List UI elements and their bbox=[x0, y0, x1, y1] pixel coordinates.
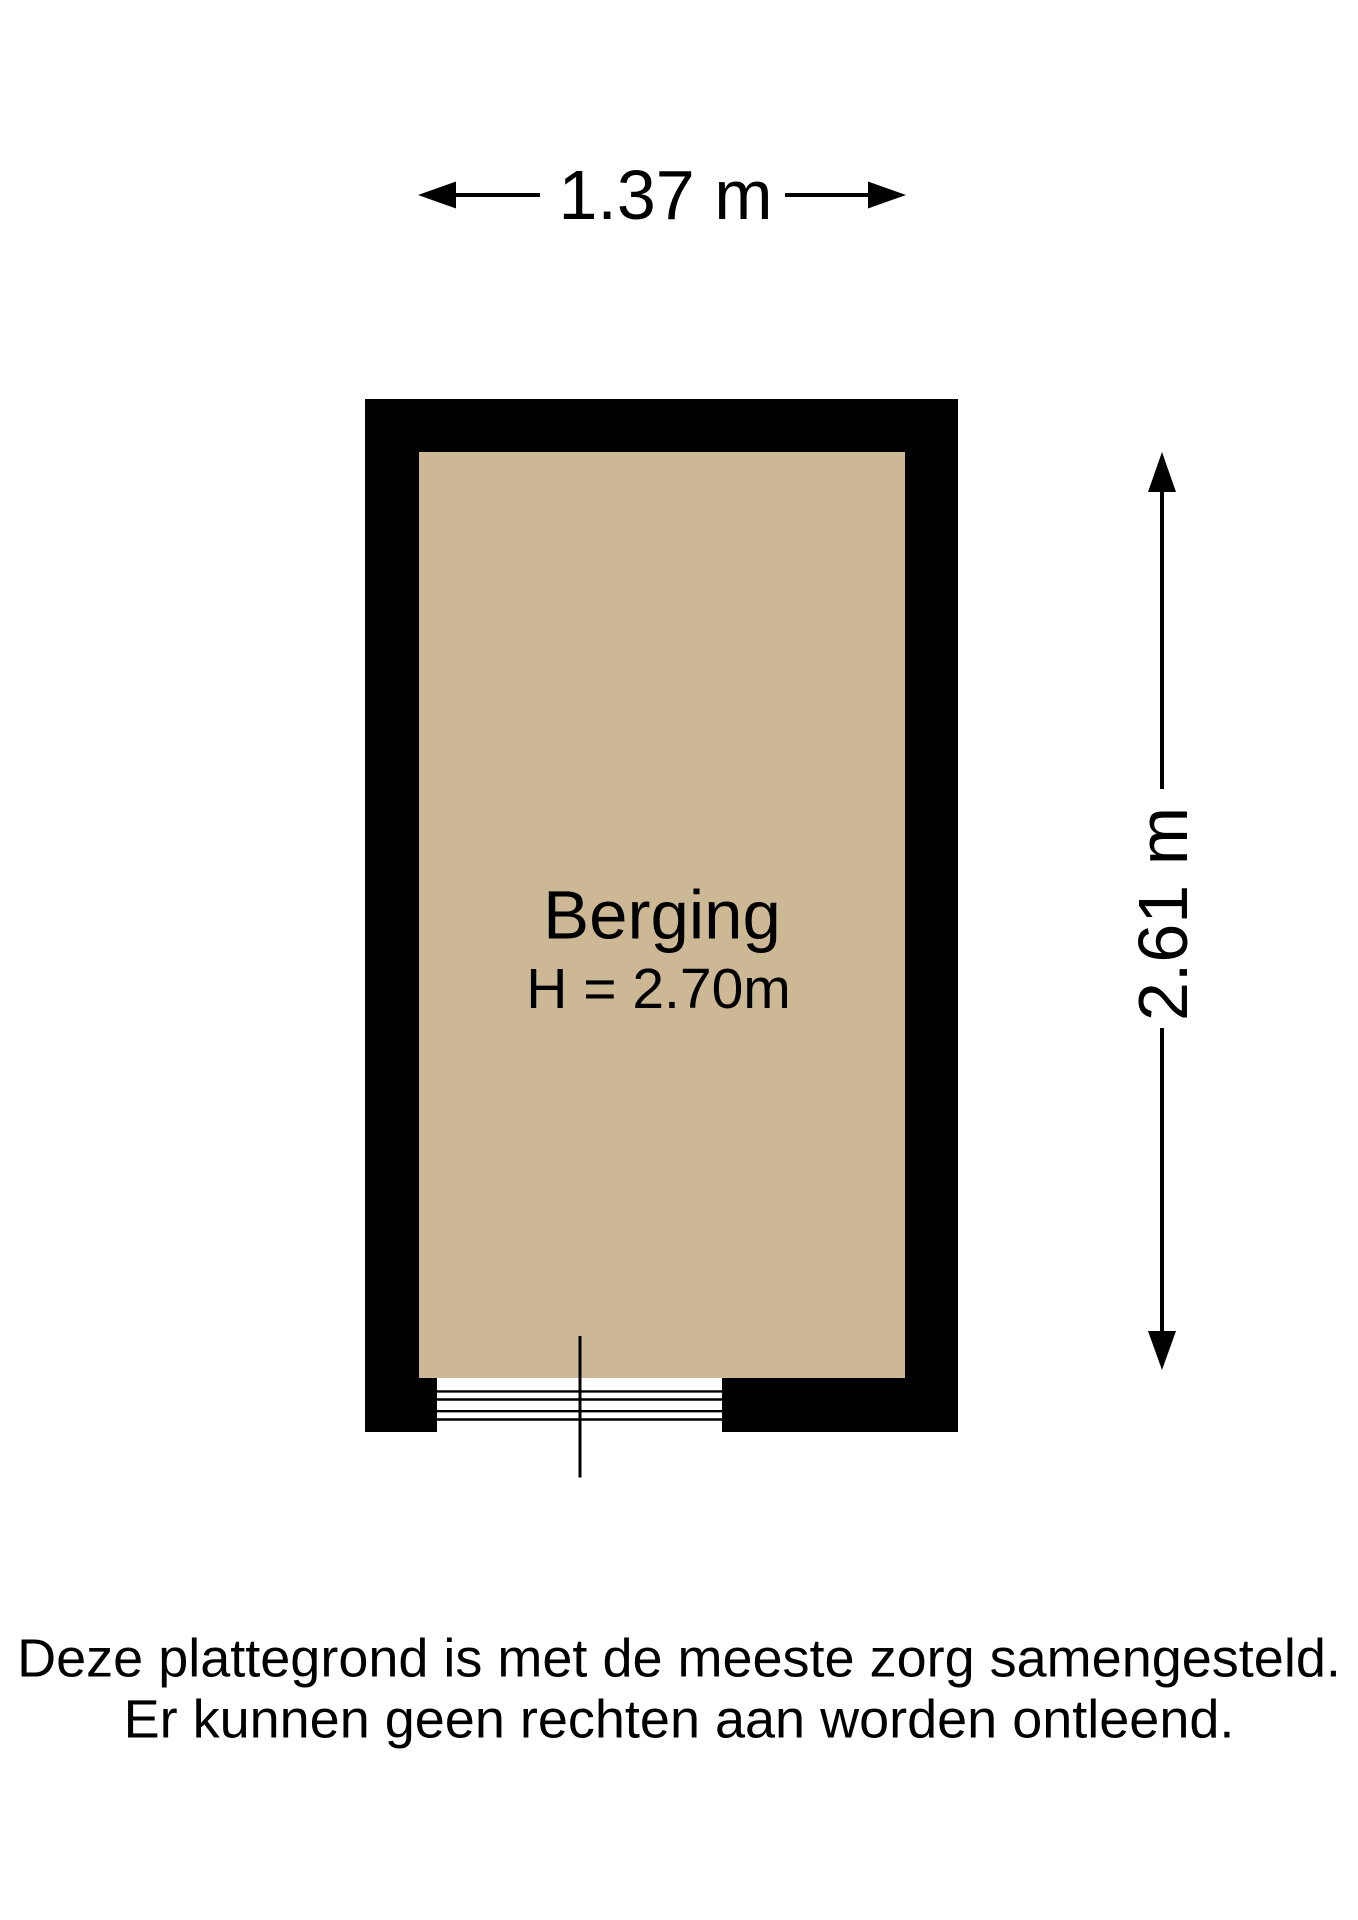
svg-text:Deze plattegrond is met de mee: Deze plattegrond is met de meeste zorg s… bbox=[17, 1628, 1341, 1688]
svg-text:1.37 m: 1.37 m bbox=[559, 156, 773, 234]
svg-text:Berging: Berging bbox=[543, 877, 781, 954]
svg-text:Er kunnen geen rechten aan wor: Er kunnen geen rechten aan worden ontlee… bbox=[124, 1690, 1235, 1750]
svg-text:H = 2.70m: H = 2.70m bbox=[526, 957, 791, 1021]
svg-text:2.61 m: 2.61 m bbox=[1124, 807, 1202, 1021]
